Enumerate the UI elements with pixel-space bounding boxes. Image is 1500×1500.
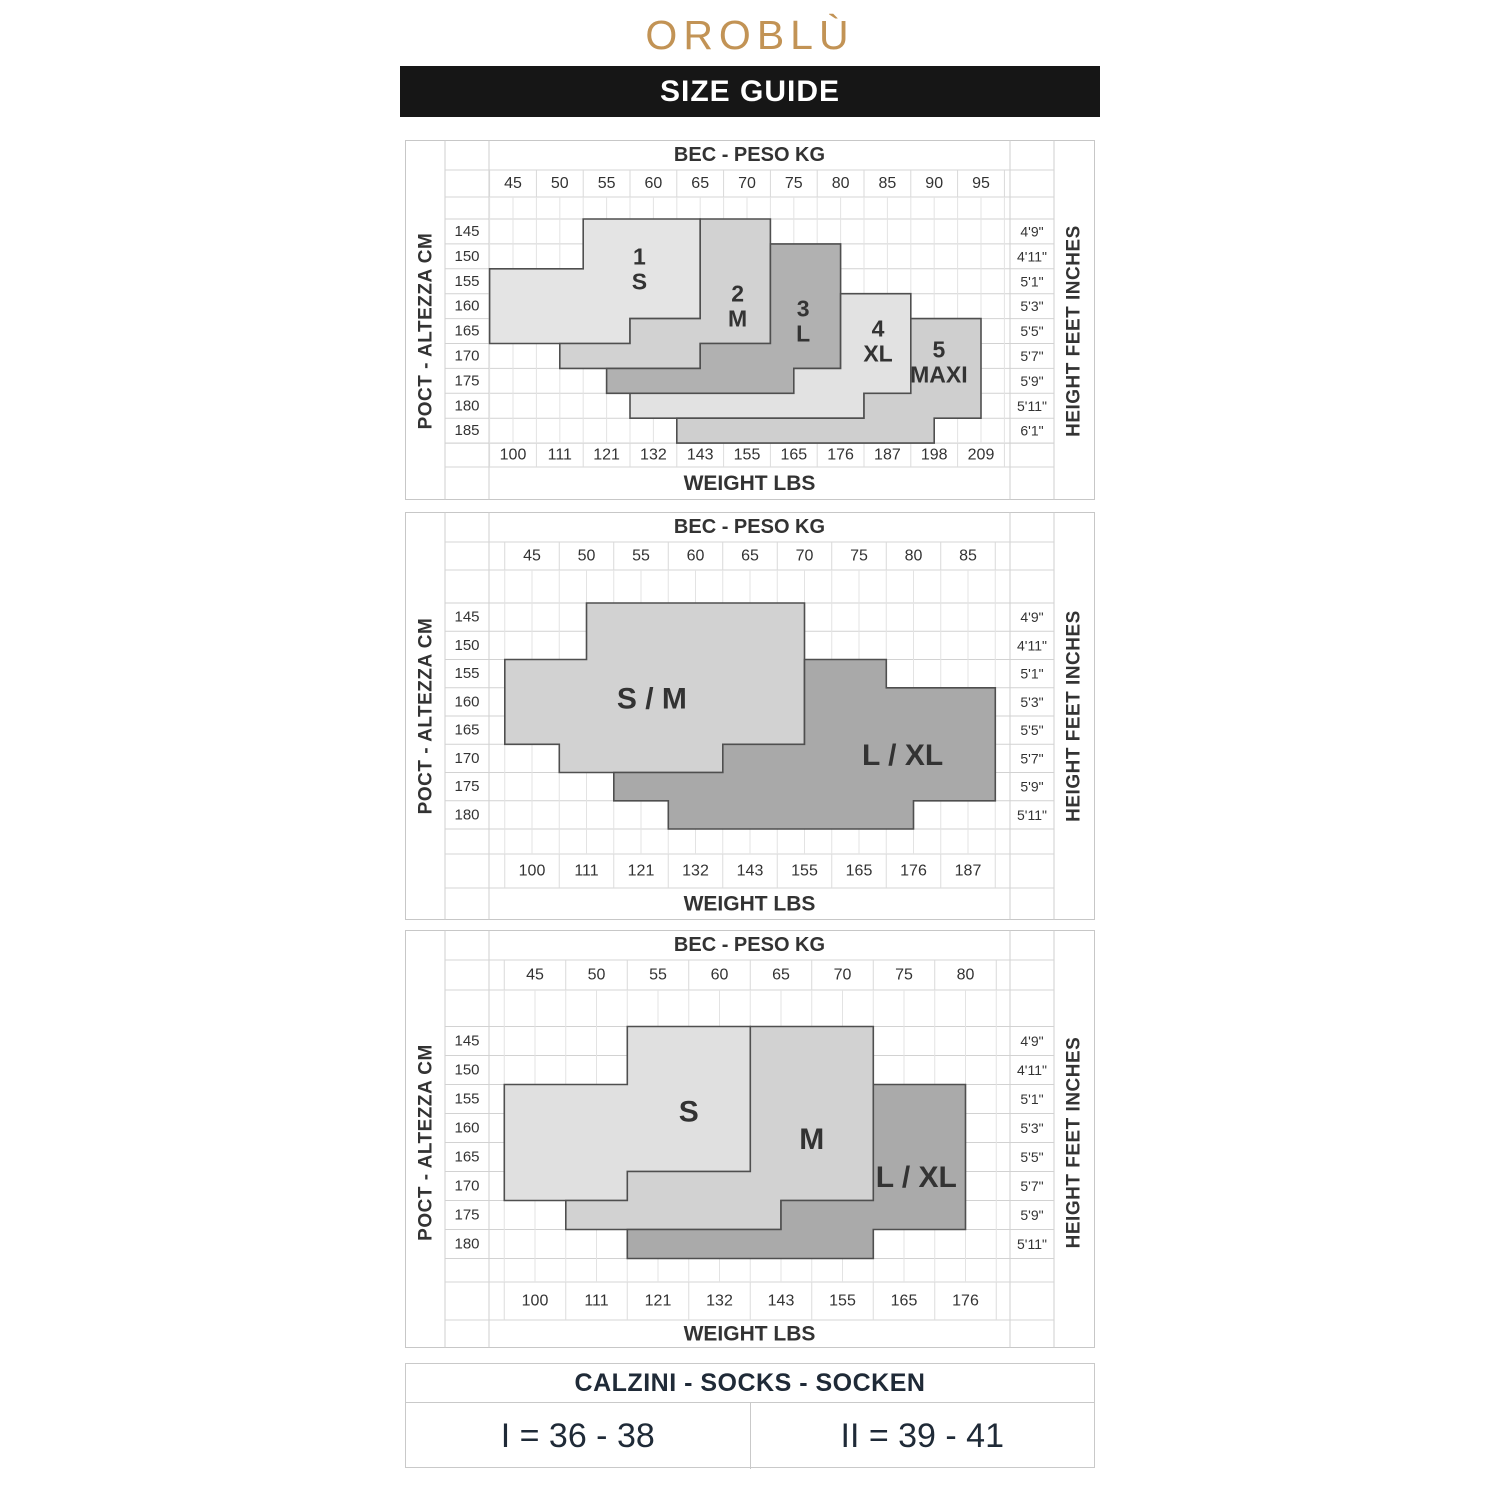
size-guide-banner: SIZE GUIDE [400, 66, 1100, 117]
ft-tick-label: 5'7" [1020, 750, 1043, 766]
right-axis-title: HEIGHT FEET INCHES [1064, 225, 1085, 437]
kg-tick-label: 95 [972, 175, 990, 192]
kg-tick-label: 60 [645, 175, 663, 192]
ft-tick-label: 6'1" [1020, 423, 1043, 439]
chart-title-bottom: WEIGHT LBS [684, 1323, 816, 1346]
cm-tick-label: 175 [454, 778, 479, 795]
kg-tick-label: 50 [578, 548, 596, 565]
cm-tick-label: 160 [454, 693, 479, 710]
ft-tick-label: 5'7" [1020, 1178, 1043, 1194]
right-axis-title: HEIGHT FEET INCHES [1064, 610, 1085, 822]
ft-tick-label: 4'11" [1017, 248, 1047, 264]
cm-tick-label: 170 [454, 1178, 479, 1195]
cm-tick-label: 170 [454, 347, 479, 364]
chart-title-top: BEC - PESO KG [674, 144, 825, 166]
kg-tick-label: 60 [711, 967, 729, 984]
kg-tick-label: 50 [551, 175, 569, 192]
cm-tick-label: 180 [454, 806, 479, 823]
size-region-label-2-m: M [728, 306, 747, 332]
kg-tick-label: 45 [523, 548, 541, 565]
ft-tick-label: 4'9" [1020, 609, 1043, 625]
size-chart-s-m-lxl: BEC - PESO KGWEIGHT LBS45505560657075801… [405, 930, 1095, 1348]
chart-title-bottom: WEIGHT LBS [684, 472, 816, 495]
kg-tick-label: 85 [959, 548, 977, 565]
kg-tick-label: 65 [691, 175, 709, 192]
ft-tick-label: 5'1" [1020, 273, 1043, 289]
size-region-label-4-xl: 4 [872, 316, 885, 342]
cm-tick-label: 145 [454, 1033, 479, 1050]
lbs-tick-label: 155 [829, 1293, 856, 1310]
lbs-tick-label: 121 [645, 1293, 672, 1310]
ft-tick-label: 5'5" [1020, 323, 1043, 339]
cm-tick-label: 185 [454, 422, 479, 439]
left-axis-title: POCT - ALTEZZA CM [416, 618, 437, 815]
kg-tick-label: 55 [632, 548, 650, 565]
socks-size-1: I = 36 - 38 [406, 1403, 751, 1469]
chart-title-top: BEC - PESO KG [674, 934, 825, 956]
lbs-tick-label: 111 [548, 447, 572, 464]
cm-tick-label: 150 [454, 1062, 479, 1079]
chart-title-top: BEC - PESO KG [674, 516, 825, 538]
lbs-tick-label: 132 [640, 447, 667, 464]
socks-table-header: CALZINI - SOCKS - SOCKEN [406, 1364, 1094, 1403]
ft-tick-label: 5'5" [1020, 722, 1043, 738]
ft-tick-label: 5'11" [1017, 398, 1047, 414]
lbs-tick-label: 143 [737, 863, 764, 880]
lbs-tick-label: 176 [952, 1293, 979, 1310]
ft-tick-label: 4'11" [1017, 1062, 1047, 1078]
size-region-label-1-s: 1 [633, 243, 646, 269]
size-region-label-4-xl: XL [863, 340, 892, 366]
kg-tick-label: 80 [905, 548, 923, 565]
lbs-tick-label: 143 [768, 1293, 795, 1310]
cm-tick-label: 150 [454, 248, 479, 265]
size-region-label-l-xl: L / XL [876, 1161, 957, 1194]
cm-tick-label: 175 [454, 1207, 479, 1224]
cm-tick-label: 150 [454, 637, 479, 654]
kg-tick-label: 65 [772, 967, 790, 984]
kg-tick-label: 45 [504, 175, 522, 192]
size-region-label-1-s: S [632, 268, 647, 294]
cm-tick-label: 160 [454, 1120, 479, 1137]
cm-tick-label: 175 [454, 372, 479, 389]
kg-tick-label: 65 [741, 548, 759, 565]
size-region-label-2-m: 2 [731, 281, 744, 307]
ft-tick-label: 4'11" [1017, 637, 1047, 653]
socks-table-row: I = 36 - 38 II = 39 - 41 [406, 1403, 1094, 1469]
size-region-label-l-xl: L / XL [862, 739, 943, 772]
lbs-tick-label: 100 [519, 863, 546, 880]
kg-tick-label: 55 [598, 175, 616, 192]
cm-tick-label: 165 [454, 722, 479, 739]
kg-tick-label: 75 [850, 548, 868, 565]
brand-logo: OROBLÙ [0, 12, 1500, 59]
cm-tick-label: 165 [454, 1149, 479, 1166]
lbs-tick-label: 143 [687, 447, 714, 464]
size-guide-page: OROBLÙ SIZE GUIDE BEC - PESO KGWEIGHT LB… [0, 0, 1500, 1500]
ft-tick-label: 5'1" [1020, 1091, 1043, 1107]
lbs-tick-label: 121 [628, 863, 655, 880]
lbs-tick-label: 176 [827, 447, 854, 464]
lbs-tick-label: 121 [593, 447, 620, 464]
kg-tick-label: 70 [834, 967, 852, 984]
kg-tick-label: 55 [649, 967, 667, 984]
ft-tick-label: 5'1" [1020, 666, 1043, 682]
ft-tick-label: 5'11" [1017, 1236, 1047, 1252]
size-region-label-5-maxi: MAXI [910, 362, 968, 388]
lbs-tick-label: 100 [522, 1293, 549, 1310]
cm-tick-label: 180 [454, 1236, 479, 1253]
cm-tick-label: 155 [454, 1091, 479, 1108]
cm-tick-label: 145 [454, 609, 479, 626]
lbs-tick-label: 198 [921, 447, 948, 464]
cm-tick-label: 155 [454, 665, 479, 682]
kg-tick-label: 75 [785, 175, 803, 192]
lbs-tick-label: 165 [891, 1293, 918, 1310]
lbs-tick-label: 176 [900, 863, 927, 880]
kg-tick-label: 70 [796, 548, 814, 565]
size-chart-numbered: BEC - PESO KGWEIGHT LBS45505560657075808… [405, 140, 1095, 500]
ft-tick-label: 5'11" [1017, 807, 1047, 823]
left-axis-title: POCT - ALTEZZA CM [416, 233, 437, 430]
socks-size-2: II = 39 - 41 [751, 1403, 1095, 1469]
socks-size-table: CALZINI - SOCKS - SOCKEN I = 36 - 38 II … [405, 1363, 1095, 1468]
kg-tick-label: 80 [957, 967, 975, 984]
lbs-tick-label: 111 [574, 863, 598, 880]
cm-tick-label: 145 [454, 223, 479, 240]
ft-tick-label: 5'9" [1020, 779, 1043, 795]
lbs-tick-label: 100 [500, 447, 527, 464]
ft-tick-label: 5'3" [1020, 298, 1043, 314]
size-chart-sm-lxl: BEC - PESO KGWEIGHT LBS45505560657075808… [405, 512, 1095, 920]
size-region-label-s: S [679, 1096, 699, 1129]
kg-tick-label: 85 [879, 175, 897, 192]
lbs-tick-label: 111 [584, 1293, 608, 1310]
kg-tick-label: 50 [588, 967, 606, 984]
ft-tick-label: 5'3" [1020, 694, 1043, 710]
size-region-label-s-m: S / M [617, 683, 687, 716]
cm-tick-label: 180 [454, 397, 479, 414]
size-region-label-3-l: 3 [797, 296, 810, 322]
cm-tick-label: 160 [454, 298, 479, 315]
lbs-tick-label: 165 [846, 863, 873, 880]
chart-title-bottom: WEIGHT LBS [684, 893, 816, 916]
ft-tick-label: 5'9" [1020, 373, 1043, 389]
ft-tick-label: 5'3" [1020, 1120, 1043, 1136]
lbs-tick-label: 155 [791, 863, 818, 880]
lbs-tick-label: 209 [968, 447, 995, 464]
kg-tick-label: 75 [895, 967, 913, 984]
cm-tick-label: 155 [454, 273, 479, 290]
ft-tick-label: 5'5" [1020, 1149, 1043, 1165]
left-axis-title: POCT - ALTEZZA CM [416, 1044, 437, 1241]
kg-tick-label: 60 [687, 548, 705, 565]
lbs-tick-label: 132 [706, 1293, 733, 1310]
ft-tick-label: 5'9" [1020, 1207, 1043, 1223]
ft-tick-label: 4'9" [1020, 223, 1043, 239]
kg-tick-label: 45 [526, 967, 544, 984]
cm-tick-label: 165 [454, 323, 479, 340]
kg-tick-label: 90 [925, 175, 943, 192]
cm-tick-label: 170 [454, 750, 479, 767]
kg-tick-label: 70 [738, 175, 756, 192]
banner-title: SIZE GUIDE [660, 75, 840, 109]
lbs-tick-label: 187 [874, 447, 901, 464]
lbs-tick-label: 165 [780, 447, 807, 464]
lbs-tick-label: 132 [682, 863, 709, 880]
size-region-label-3-l: L [796, 321, 810, 347]
size-region-label-m: M [799, 1123, 824, 1156]
right-axis-title: HEIGHT FEET INCHES [1064, 1037, 1085, 1249]
ft-tick-label: 4'9" [1020, 1033, 1043, 1049]
lbs-tick-label: 187 [955, 863, 982, 880]
size-region-label-5-maxi: 5 [932, 337, 945, 363]
ft-tick-label: 5'7" [1020, 348, 1043, 364]
lbs-tick-label: 155 [734, 447, 761, 464]
kg-tick-label: 80 [832, 175, 850, 192]
